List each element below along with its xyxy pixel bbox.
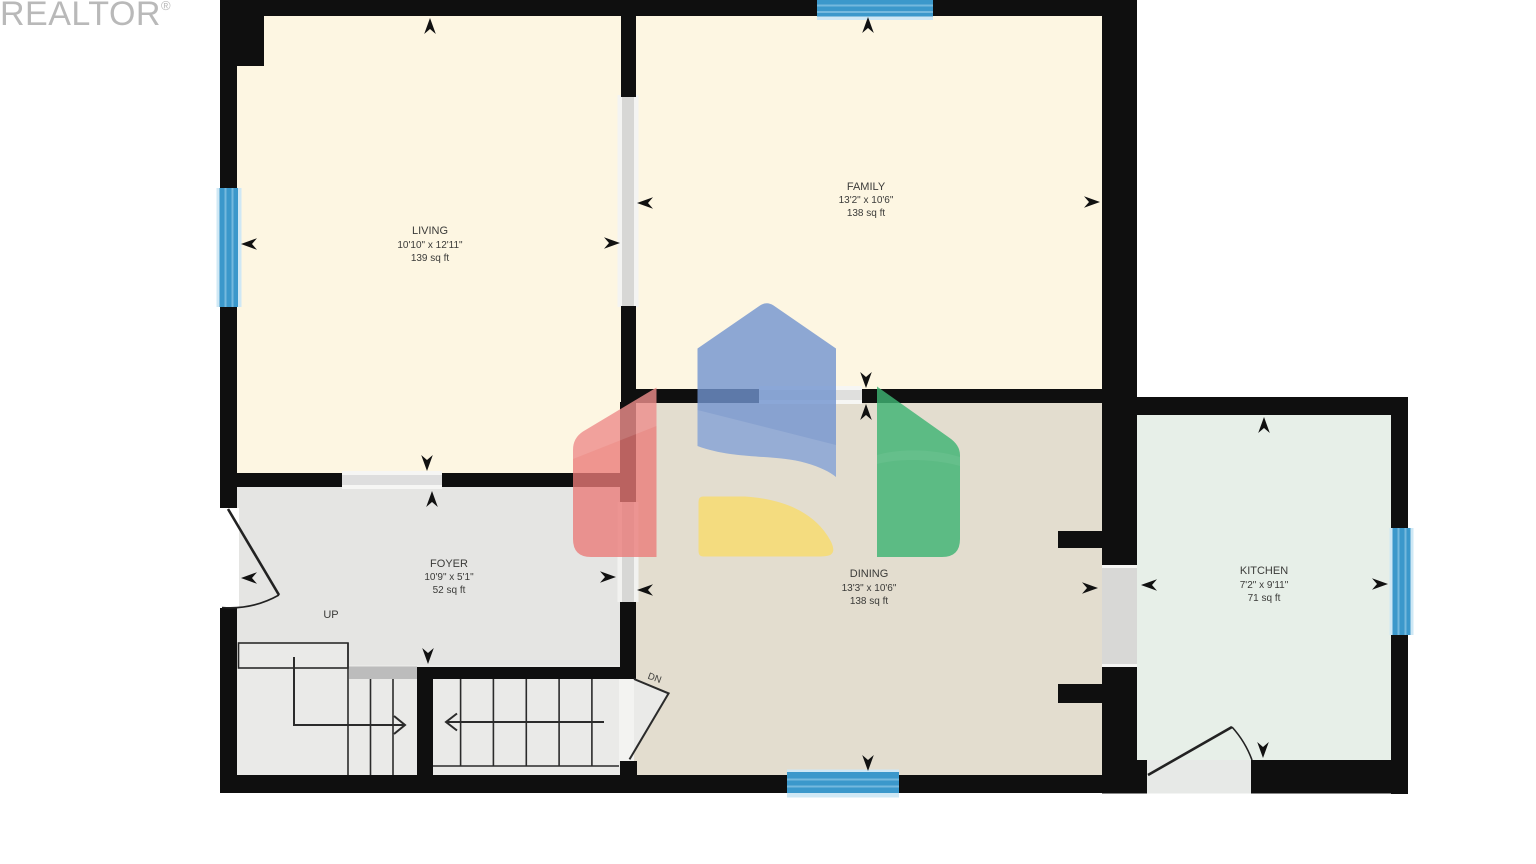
svg-text:FOYER: FOYER [430, 558, 468, 570]
svg-text:138 sq ft: 138 sq ft [850, 596, 889, 607]
svg-text:71 sq ft: 71 sq ft [1248, 593, 1281, 604]
svg-text:52 sq ft: 52 sq ft [433, 585, 466, 596]
svg-text:KITCHEN: KITCHEN [1240, 565, 1288, 577]
svg-text:139 sq ft: 139 sq ft [411, 253, 450, 264]
svg-text:7'2" x 9'11": 7'2" x 9'11" [1240, 580, 1289, 591]
svg-text:138 sq ft: 138 sq ft [847, 208, 886, 219]
svg-text:UP: UP [323, 609, 338, 621]
svg-text:DINING: DINING [850, 568, 889, 580]
svg-text:13'3" x 10'6": 13'3" x 10'6" [842, 583, 897, 594]
svg-text:FAMILY: FAMILY [847, 181, 886, 193]
svg-text:LIVING: LIVING [412, 225, 448, 237]
svg-text:10'10" x 12'11": 10'10" x 12'11" [397, 240, 463, 251]
svg-text:10'9" x 5'1": 10'9" x 5'1" [424, 572, 474, 583]
svg-text:REALTOR®: REALTOR® [0, 0, 171, 33]
svg-text:13'2" x 10'6": 13'2" x 10'6" [839, 195, 894, 206]
